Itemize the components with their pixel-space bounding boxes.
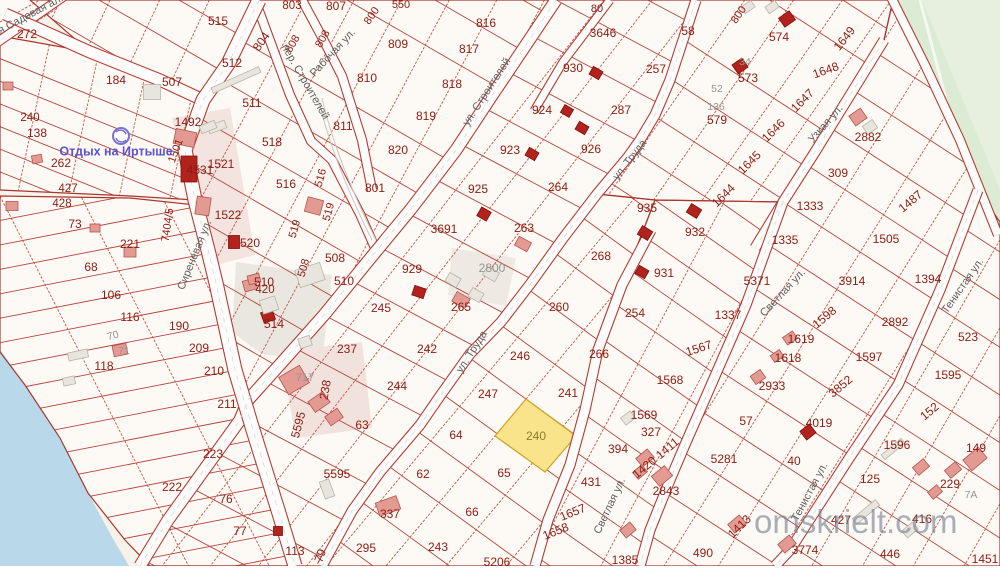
svg-text:446: 446 xyxy=(880,547,900,561)
svg-text:807: 807 xyxy=(326,0,346,13)
svg-text:71: 71 xyxy=(118,345,130,357)
svg-text:omskrielt.com: omskrielt.com xyxy=(754,503,958,540)
svg-text:295: 295 xyxy=(356,541,376,555)
svg-text:931: 931 xyxy=(654,266,674,280)
svg-text:810: 810 xyxy=(357,71,377,85)
svg-text:64: 64 xyxy=(449,428,463,442)
svg-text:229: 229 xyxy=(940,477,960,491)
svg-text:1618: 1618 xyxy=(775,351,802,365)
svg-text:136: 136 xyxy=(707,101,725,113)
svg-text:925: 925 xyxy=(468,182,488,196)
svg-text:40: 40 xyxy=(787,454,801,468)
svg-text:4019: 4019 xyxy=(806,416,833,430)
svg-text:1505: 1505 xyxy=(873,232,900,246)
svg-text:125: 125 xyxy=(860,472,880,486)
svg-text:245: 245 xyxy=(371,301,391,315)
svg-text:247: 247 xyxy=(478,387,498,401)
svg-text:930: 930 xyxy=(563,61,583,75)
svg-text:818: 818 xyxy=(442,77,462,91)
svg-text:327: 327 xyxy=(641,425,661,439)
svg-text:68: 68 xyxy=(84,260,98,274)
svg-text:337: 337 xyxy=(380,507,400,521)
svg-text:507: 507 xyxy=(162,75,182,89)
svg-text:932: 932 xyxy=(685,225,705,239)
svg-text:1596: 1596 xyxy=(884,438,911,452)
svg-text:926: 926 xyxy=(581,142,601,156)
svg-text:116: 116 xyxy=(120,310,139,324)
svg-text:76: 76 xyxy=(219,492,233,506)
svg-text:717: 717 xyxy=(296,372,314,384)
svg-text:242: 242 xyxy=(417,342,437,356)
svg-text:428: 428 xyxy=(52,198,71,210)
svg-text:3646: 3646 xyxy=(590,26,617,40)
svg-text:244: 244 xyxy=(387,379,407,393)
svg-text:1492: 1492 xyxy=(175,115,202,129)
svg-text:1451: 1451 xyxy=(972,552,999,566)
svg-text:490: 490 xyxy=(693,546,713,560)
svg-text:211: 211 xyxy=(217,397,236,411)
svg-text:57: 57 xyxy=(739,414,753,428)
svg-text:1568: 1568 xyxy=(657,373,684,387)
svg-text:394: 394 xyxy=(608,442,628,456)
svg-text:272: 272 xyxy=(17,27,37,41)
svg-text:265: 265 xyxy=(451,300,471,314)
svg-text:2843: 2843 xyxy=(653,484,680,498)
svg-text:118: 118 xyxy=(94,359,113,373)
svg-text:510: 510 xyxy=(254,275,274,289)
svg-text:514: 514 xyxy=(264,317,284,331)
svg-text:431: 431 xyxy=(581,475,601,489)
svg-text:1619: 1619 xyxy=(788,332,815,346)
svg-text:223: 223 xyxy=(203,447,223,461)
svg-text:1337: 1337 xyxy=(715,308,742,322)
svg-text:518: 518 xyxy=(262,135,282,149)
svg-text:3774: 3774 xyxy=(792,543,819,557)
svg-text:520: 520 xyxy=(240,236,260,250)
svg-text:65: 65 xyxy=(497,466,511,480)
svg-text:149: 149 xyxy=(966,441,986,455)
svg-text:254: 254 xyxy=(625,306,645,320)
svg-text:427: 427 xyxy=(58,183,77,195)
svg-text:574: 574 xyxy=(769,30,789,44)
svg-text:515: 515 xyxy=(208,14,228,28)
svg-text:923: 923 xyxy=(500,143,520,157)
svg-text:243: 243 xyxy=(428,540,448,554)
svg-text:1335: 1335 xyxy=(772,233,799,247)
svg-text:1521: 1521 xyxy=(208,157,235,171)
svg-text:1597: 1597 xyxy=(856,350,883,364)
svg-text:820: 820 xyxy=(388,143,408,157)
svg-text:287: 287 xyxy=(611,103,631,117)
svg-text:184: 184 xyxy=(106,73,126,87)
svg-text:550: 550 xyxy=(392,0,410,11)
svg-text:138: 138 xyxy=(27,126,47,140)
svg-text:209: 209 xyxy=(189,341,209,355)
svg-text:80: 80 xyxy=(591,3,603,15)
svg-text:263: 263 xyxy=(514,221,534,235)
svg-text:66: 66 xyxy=(465,505,479,519)
svg-text:246: 246 xyxy=(510,349,530,363)
svg-text:63: 63 xyxy=(355,418,369,432)
svg-text:516: 516 xyxy=(276,177,296,191)
svg-text:5371: 5371 xyxy=(744,274,771,288)
svg-text:240: 240 xyxy=(526,429,546,443)
svg-text:816: 816 xyxy=(476,16,496,30)
svg-text:3691: 3691 xyxy=(431,222,458,236)
svg-text:817: 817 xyxy=(459,42,479,56)
svg-text:523: 523 xyxy=(958,330,978,344)
svg-text:1595: 1595 xyxy=(935,368,962,382)
svg-text:573: 573 xyxy=(738,71,758,85)
svg-text:2892: 2892 xyxy=(882,315,909,329)
svg-text:113: 113 xyxy=(285,544,304,558)
svg-text:221: 221 xyxy=(120,237,140,251)
svg-text:77: 77 xyxy=(233,524,247,538)
svg-text:73: 73 xyxy=(68,217,82,231)
svg-text:512: 512 xyxy=(222,56,242,70)
svg-text:5206: 5206 xyxy=(484,555,511,566)
svg-text:2933: 2933 xyxy=(759,379,786,393)
svg-text:1333: 1333 xyxy=(797,199,824,213)
svg-text:106: 106 xyxy=(101,288,121,302)
svg-text:511: 511 xyxy=(242,96,261,110)
svg-text:935: 935 xyxy=(637,201,657,215)
svg-text:241: 241 xyxy=(558,386,578,400)
svg-text:260: 260 xyxy=(549,300,569,314)
svg-text:237: 237 xyxy=(337,342,357,356)
svg-text:52: 52 xyxy=(711,83,723,95)
svg-text:266: 266 xyxy=(589,347,609,361)
svg-text:268: 268 xyxy=(591,249,611,263)
svg-text:510: 510 xyxy=(334,274,354,288)
svg-text:1394: 1394 xyxy=(915,272,942,286)
svg-text:309: 309 xyxy=(828,166,848,180)
svg-text:1385: 1385 xyxy=(612,553,639,566)
svg-text:924: 924 xyxy=(532,103,552,117)
svg-text:508: 508 xyxy=(325,251,345,265)
svg-text:5281: 5281 xyxy=(711,452,738,466)
svg-text:579: 579 xyxy=(707,113,727,127)
svg-text:811: 811 xyxy=(333,119,352,133)
svg-text:264: 264 xyxy=(548,180,568,194)
svg-text:190: 190 xyxy=(169,319,189,333)
svg-text:2882: 2882 xyxy=(855,130,882,144)
svg-text:58: 58 xyxy=(681,24,695,38)
svg-text:801: 801 xyxy=(365,181,385,195)
svg-text:62: 62 xyxy=(416,467,430,481)
svg-text:34: 34 xyxy=(739,56,751,68)
svg-text:803: 803 xyxy=(282,0,301,12)
svg-text:Отдых на Иртыше: Отдых на Иртыше xyxy=(59,144,172,158)
svg-text:222: 222 xyxy=(162,480,182,494)
svg-text:257: 257 xyxy=(646,62,666,76)
svg-text:819: 819 xyxy=(416,109,436,123)
svg-text:7A: 7A xyxy=(965,489,978,501)
svg-text:2800: 2800 xyxy=(479,261,506,275)
svg-text:210: 210 xyxy=(204,364,224,378)
svg-text:1569: 1569 xyxy=(631,408,658,422)
svg-text:3914: 3914 xyxy=(839,274,866,288)
svg-text:5595: 5595 xyxy=(324,467,351,481)
svg-text:809: 809 xyxy=(388,37,408,51)
svg-text:240: 240 xyxy=(20,112,39,124)
svg-text:929: 929 xyxy=(402,262,422,276)
svg-text:1522: 1522 xyxy=(215,208,242,222)
